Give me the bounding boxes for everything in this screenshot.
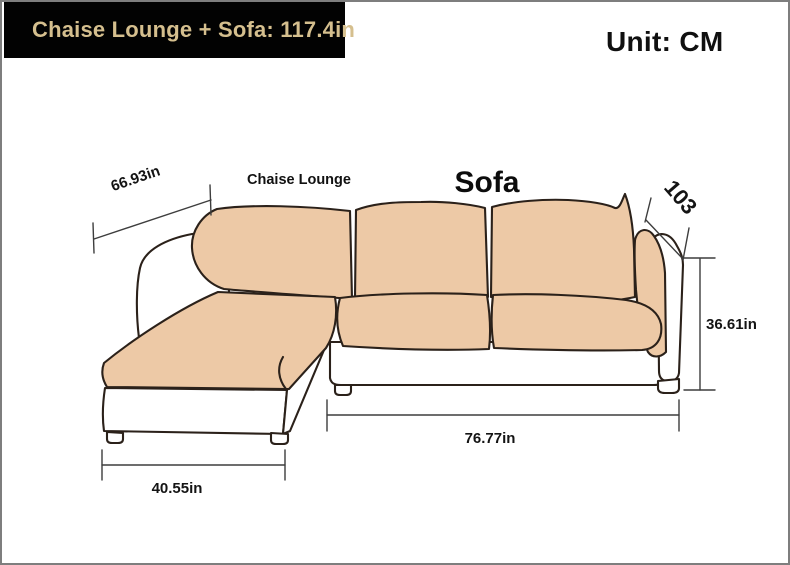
dim-sofa-length	[327, 400, 679, 431]
sofa-seat-cushion-1	[337, 293, 490, 349]
sofa-seat-cushion-2	[492, 294, 662, 350]
dim-back-height-label: 103	[659, 175, 702, 219]
dim-tick	[210, 185, 211, 215]
dim-sofa-length-label: 76.77in	[465, 430, 516, 447]
chaise-leg-right	[271, 433, 288, 444]
chaise-lounge-label: Chaise Lounge	[247, 172, 351, 188]
dim-tick	[645, 198, 651, 222]
chaise-leg-left	[107, 432, 123, 443]
dim-tick	[683, 228, 689, 260]
dim-chaise-width-label: 40.55in	[152, 480, 203, 497]
sofa-leg-left	[335, 385, 351, 395]
sofa-back-pillow-1	[355, 202, 488, 302]
dim-right-height-label: 36.61in	[706, 316, 757, 333]
sofa-label: Sofa	[454, 166, 519, 199]
sofa-back-pillow-2	[491, 194, 635, 302]
sofa-right-arm-foot	[658, 379, 679, 393]
chaise-base-front	[103, 388, 287, 434]
dim-chaise-depth-label: 66.93in	[109, 162, 163, 195]
dim-chaise-width	[102, 450, 285, 480]
chaise-back-pillow	[192, 206, 352, 299]
product-dimension-image: Chaise Lounge + Sofa: 117.4in Unit: CM	[0, 0, 790, 565]
dim-tick	[93, 223, 94, 253]
sofa-diagram: 66.93in 103 36.61in 76.77in 40.55in Chai…	[2, 2, 788, 563]
